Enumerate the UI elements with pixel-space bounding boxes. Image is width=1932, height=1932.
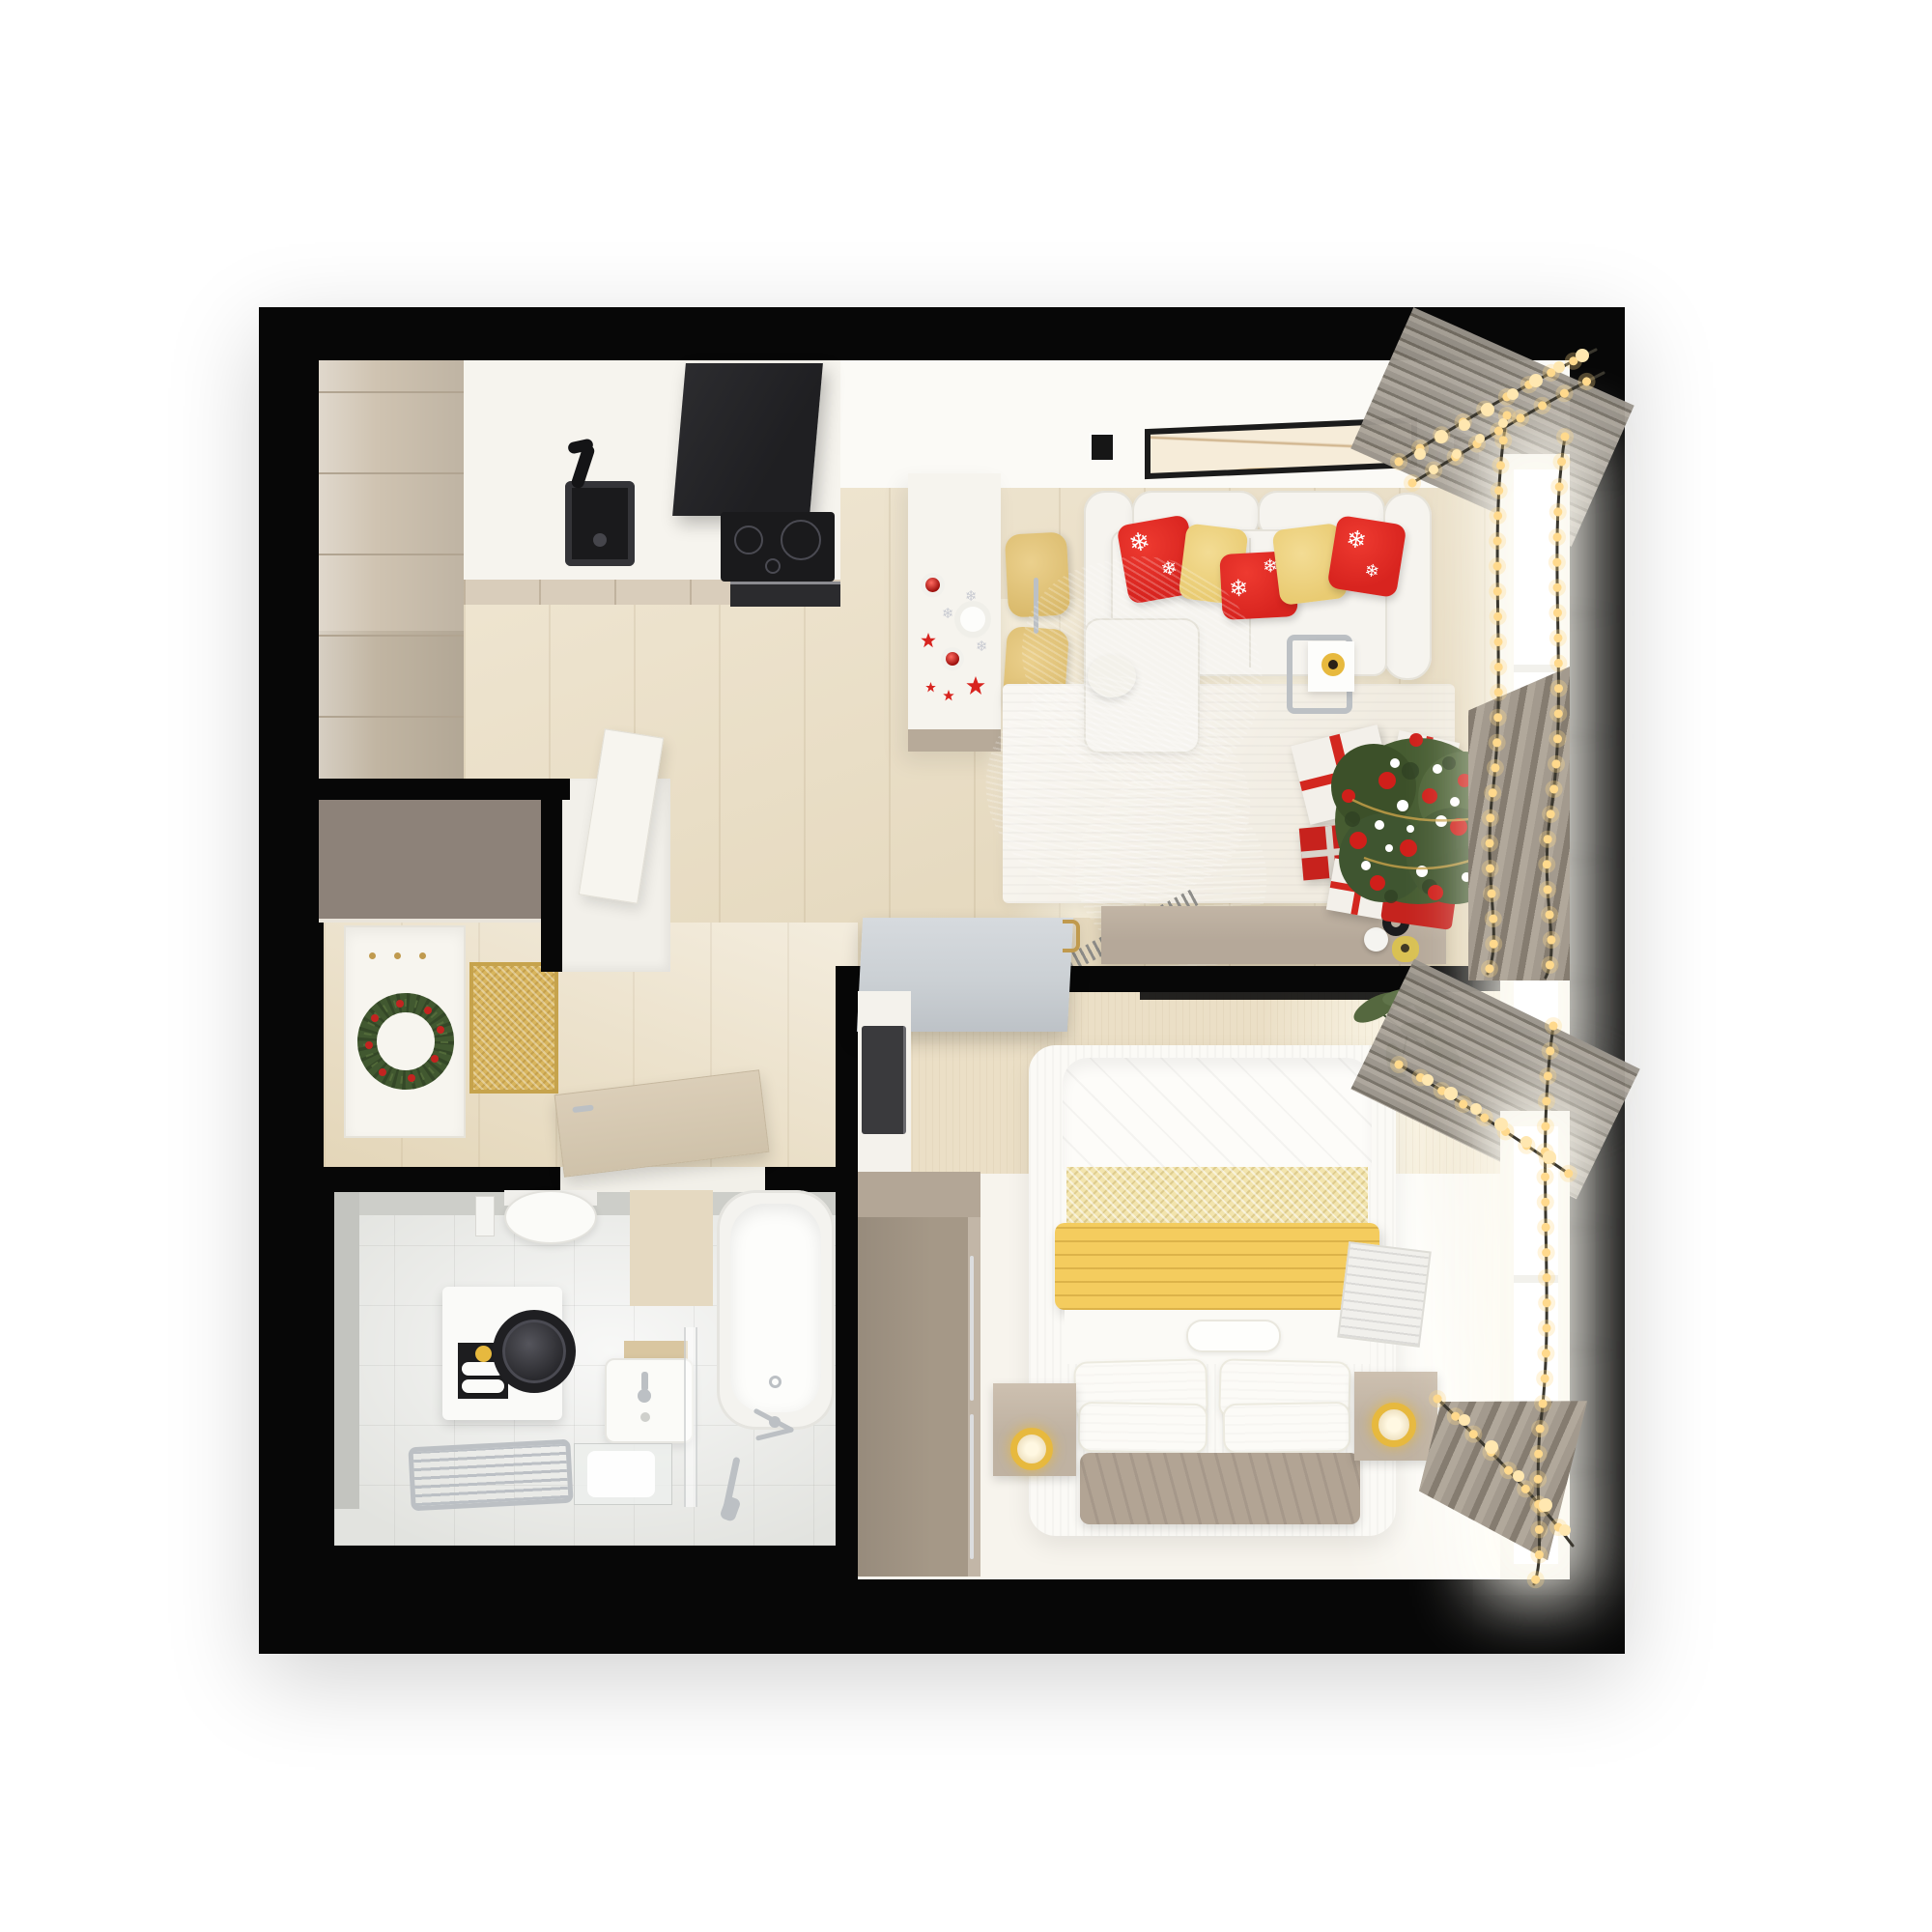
gift-box-white [1326,858,1390,919]
burner-icon [765,558,781,574]
wardrobe-top-section [858,1172,980,1217]
yellow-accessory [475,1346,492,1362]
window-mullion [1514,665,1558,672]
hallway-north-wall [319,779,570,800]
bed-cushion-detail [1186,1320,1281,1352]
coat-hook-icon [394,952,401,959]
wardrobe-handle [970,1414,974,1559]
cooktop [721,512,835,582]
pale-yellow-knit-band [1066,1167,1368,1227]
yellow-pleated-throw [1055,1223,1379,1310]
tv-screen [862,1026,906,1134]
yellow-mug [1321,653,1345,676]
bathtub-drain [769,1376,781,1388]
red-candle [925,578,940,592]
red-candle [946,652,959,666]
foot-of-bed-bench [1080,1453,1360,1524]
white-vase [1364,927,1388,952]
burner-icon [734,526,763,554]
floor-plan-canvas: ❄ ❄ ❄ ❄ ❄ ❄ ❄ ❄ [0,0,1932,1932]
sink-drain-icon [593,533,607,547]
coat-hook-icon [419,952,426,959]
yellow-vase [1392,936,1419,962]
bathroom-south-wall [319,1546,858,1584]
silver-snowflake-decoration: ❄ [976,639,988,654]
radiator [1337,1241,1432,1348]
yellow-ring-lamp [1372,1403,1416,1447]
washing-machine-drum [493,1310,576,1393]
gold-doormat [469,962,558,1094]
oven-front [730,582,840,607]
vanity-faucet-base [638,1389,651,1403]
silver-snowflake-decoration: ❄ [942,607,954,621]
range-hood [672,363,823,516]
vanity-faucet [641,1372,648,1391]
hallway-kitchen-wall [541,779,562,972]
kitchen-sink [565,481,635,566]
cake-stand [960,607,985,632]
beige-accent-panel [630,1190,713,1306]
silver-snowflake-decoration: ❄ [965,589,978,604]
vanity-drain [640,1412,650,1422]
toilet [504,1190,597,1244]
coat-hook-icon [369,952,376,959]
wardrobe-handle [970,1256,974,1401]
flush-plate [475,1196,495,1236]
rolled-towel [462,1379,504,1393]
bed-pillow [1078,1402,1208,1454]
kitchen-tall-cabinets [319,360,464,797]
wall-sconce [1090,433,1113,460]
snowflake-icon: ❄ [1345,526,1369,554]
bedroom-wardrobe [858,1217,980,1577]
snowflake-icon: ❄ [1363,562,1380,582]
bedroom-west-wall [836,966,858,1579]
bathroom-wall-tiles-left [334,1190,359,1509]
snowflake-icon: ❄ [1127,528,1152,556]
vanity-sink [605,1358,694,1443]
towel-ladder-radiator [408,1439,573,1512]
taupe-curtain [1468,667,1570,980]
door-handle [572,1104,594,1113]
shower-mixer-valve [769,1416,781,1428]
vanity-wood-shelf [624,1341,688,1360]
yellow-ring-lamp [1010,1428,1053,1470]
entry-door [344,925,466,1138]
red-snowflake-pillow: ❄ ❄ [1326,515,1406,598]
burner-icon [781,520,821,560]
bed-pillow [1223,1402,1351,1454]
bar-peninsula-base [908,729,1001,752]
glass-shower-screen [684,1327,697,1507]
bar-peninsula [908,473,1001,752]
mirror-reflection [587,1451,655,1497]
hallway-closet-dark [319,800,541,923]
bed-duvet [1063,1058,1372,1174]
brass-door-handle [1063,920,1080,952]
window-mullion [1514,1275,1558,1283]
black-vase [1382,909,1409,936]
